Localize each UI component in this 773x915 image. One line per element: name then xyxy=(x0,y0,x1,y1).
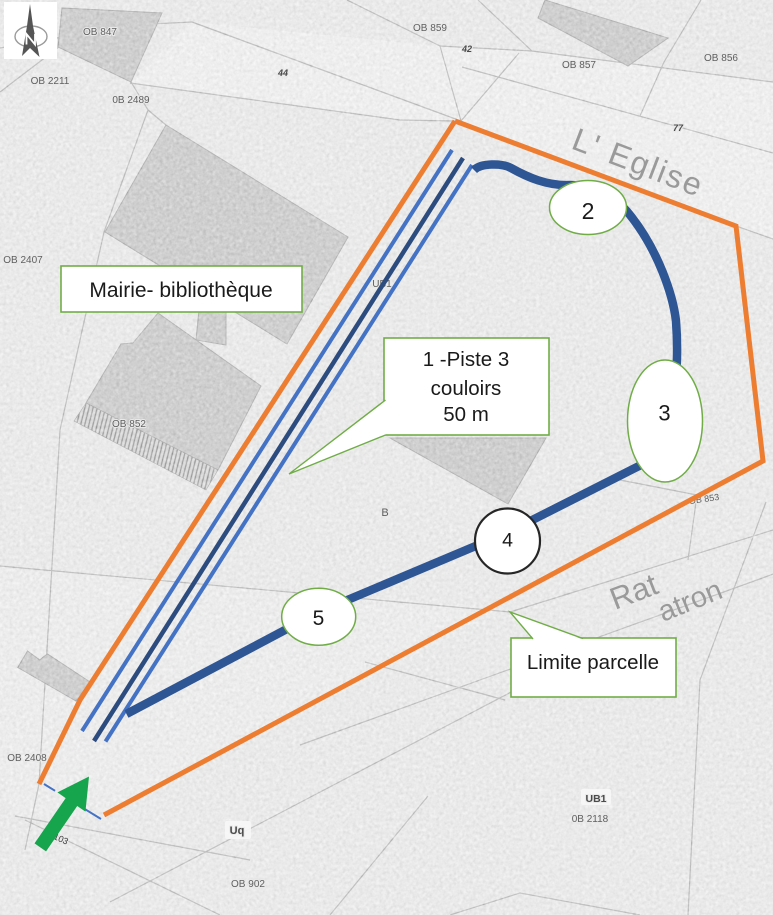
svg-text:77: 77 xyxy=(673,123,684,133)
svg-text:B: B xyxy=(381,507,388,519)
svg-text:OB 857: OB 857 xyxy=(562,60,596,71)
svg-text:OB 2408: OB 2408 xyxy=(7,753,47,764)
svg-text:UB1: UB1 xyxy=(585,793,606,805)
svg-text:couloirs: couloirs xyxy=(431,377,502,400)
svg-text:OB 852: OB 852 xyxy=(112,419,146,430)
svg-text:50 m: 50 m xyxy=(443,403,489,426)
svg-text:OB 847: OB 847 xyxy=(83,27,117,38)
svg-text:3: 3 xyxy=(658,401,670,426)
svg-text:5: 5 xyxy=(313,607,325,630)
svg-text:42: 42 xyxy=(461,44,472,54)
svg-text:Limite parcelle: Limite parcelle xyxy=(527,651,659,674)
svg-text:0B 2489: 0B 2489 xyxy=(112,95,150,106)
svg-text:Mairie- bibliothèque: Mairie- bibliothèque xyxy=(89,279,272,302)
svg-text:OB 2407: OB 2407 xyxy=(3,255,43,266)
svg-text:2: 2 xyxy=(582,198,595,224)
svg-text:OB 2211: OB 2211 xyxy=(31,76,70,87)
svg-text:OB 859: OB 859 xyxy=(413,23,447,34)
svg-text:Uq: Uq xyxy=(230,825,245,837)
svg-text:OB 856: OB 856 xyxy=(704,53,738,64)
svg-text:4: 4 xyxy=(502,530,513,552)
svg-text:1 -Piste 3: 1 -Piste 3 xyxy=(423,348,510,371)
svg-text:0B 2118: 0B 2118 xyxy=(572,814,609,825)
svg-text:44: 44 xyxy=(277,68,288,78)
svg-text:OB 902: OB 902 xyxy=(231,879,265,890)
